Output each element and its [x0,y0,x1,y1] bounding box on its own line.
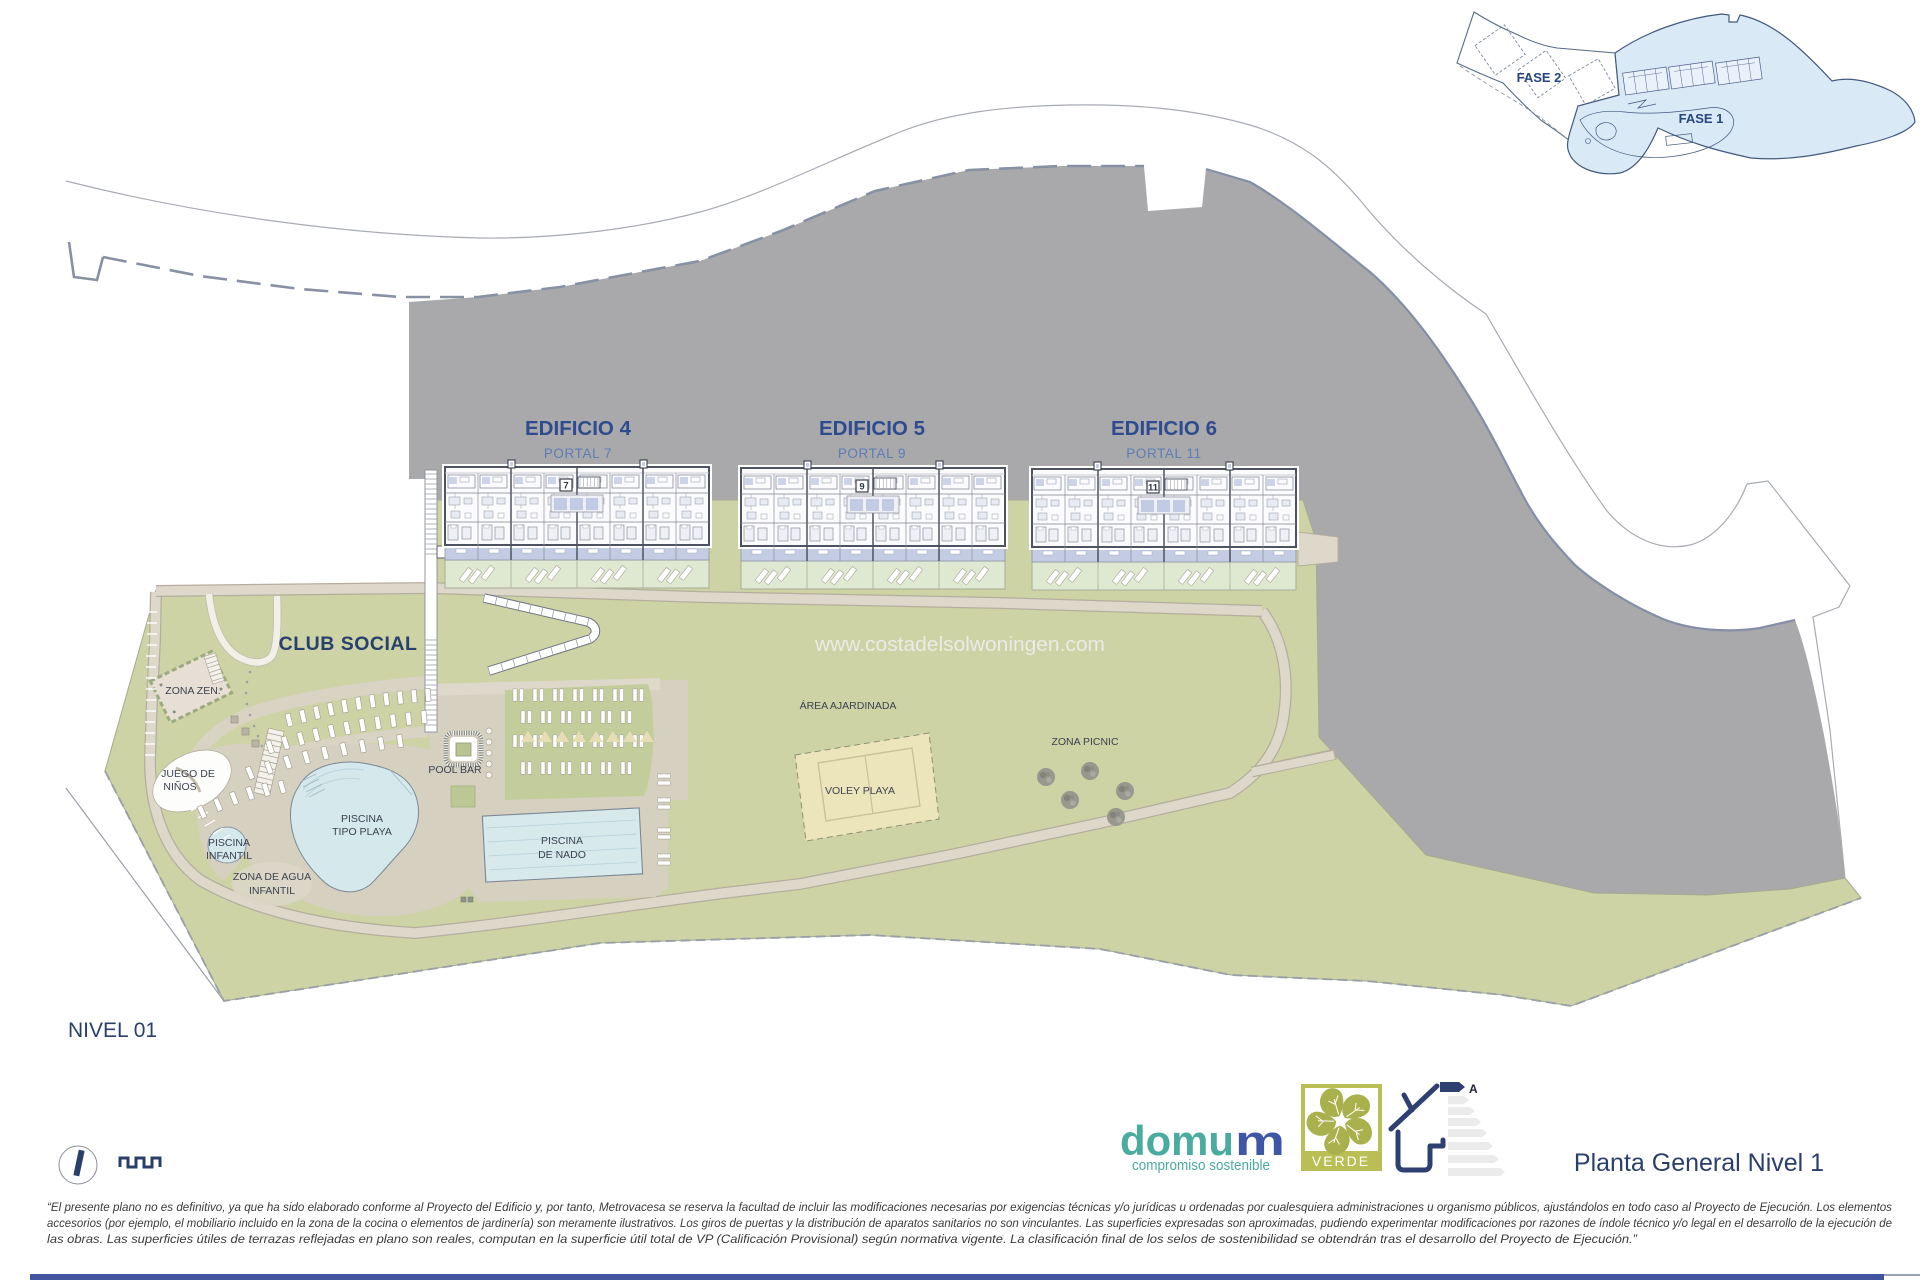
svg-text:EDIFICIO 6: EDIFICIO 6 [1111,417,1217,440]
svg-text:ZONA ZEN.: ZONA ZEN. [165,685,220,697]
svg-text:JUEGO DE: JUEGO DE [161,768,215,780]
svg-text:PORTAL 11: PORTAL 11 [1126,446,1201,461]
svg-text:TIPO PLAYA: TIPO PLAYA [332,826,392,838]
svg-text:A: A [1469,1082,1478,1096]
svg-text:m: m [1235,1117,1285,1164]
svg-text:PISCINA: PISCINA [541,835,583,847]
svg-text:VERDE: VERDE [1312,1153,1370,1169]
svg-text:accesorios (por ejemplo, el mo: accesorios (por ejemplo, el mobiliario i… [47,1216,1892,1230]
svg-text:las obras. Las superficies úti: las obras. Las superficies útiles de ter… [47,1232,1638,1246]
svg-text:POOL BAR: POOL BAR [428,764,482,776]
svg-text:PISCINA: PISCINA [341,813,383,825]
svg-text:PISCINA: PISCINA [208,837,250,849]
svg-text:FASE 2: FASE 2 [1517,70,1562,85]
svg-text:CLUB SOCIAL: CLUB SOCIAL [279,633,418,655]
svg-text:EDIFICIO 4: EDIFICIO 4 [525,417,632,440]
svg-text:ZONA PICNIC: ZONA PICNIC [1051,736,1119,748]
svg-text:VOLEY PLAYA: VOLEY PLAYA [825,785,895,797]
svg-text:DE NADO: DE NADO [538,849,586,861]
svg-text:NIVEL 01: NIVEL 01 [68,1019,157,1042]
svg-text:PORTAL 7: PORTAL 7 [544,446,612,461]
svg-text:INFANTIL: INFANTIL [206,850,252,862]
svg-text:ZONA DE AGUA: ZONA DE AGUA [233,871,311,883]
svg-text:Planta General Nivel 1: Planta General Nivel 1 [1574,1149,1824,1177]
svg-text:INFANTIL: INFANTIL [249,885,295,897]
svg-text:11: 11 [1148,483,1159,494]
svg-text:domu: domu [1120,1117,1234,1164]
svg-text:7: 7 [563,481,568,492]
svg-text:9: 9 [859,482,864,493]
svg-text:ÁREA AJARDINADA: ÁREA AJARDINADA [800,699,897,712]
svg-text:www.costadelsolwoningen.com: www.costadelsolwoningen.com [814,633,1105,656]
svg-text:NIÑOS: NIÑOS [163,780,196,793]
svg-text:“El presente plano no es defin: “El presente plano no es definitivo, ya … [47,1200,1892,1214]
svg-text:compromiso sostenible: compromiso sostenible [1132,1158,1270,1174]
svg-text:FASE 1: FASE 1 [1679,111,1724,126]
svg-text:PORTAL 9: PORTAL 9 [838,446,906,461]
svg-text:EDIFICIO 5: EDIFICIO 5 [819,417,925,440]
